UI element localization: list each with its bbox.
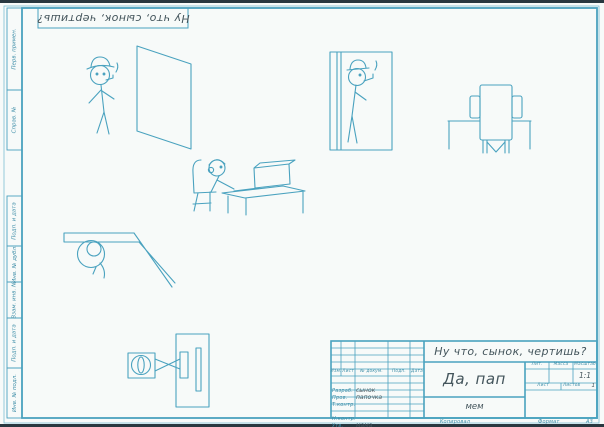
format-value: А3 xyxy=(586,420,593,425)
lit-label: Лит. xyxy=(532,363,543,367)
margin-label: Подп. и дата xyxy=(12,324,18,361)
margin-cell-sprav-no: Справ. № xyxy=(7,90,22,150)
scene-chair-and-desk-front-view xyxy=(448,85,531,153)
margin-label: Инв. № дубл. xyxy=(12,245,18,283)
drawing-title-cell: Да, пап xyxy=(424,362,525,397)
sig-value-prov: папочка xyxy=(356,384,388,390)
th-izm: Изм. xyxy=(331,369,341,376)
sig-value: мама xyxy=(356,422,372,427)
margin-cell-podp-data-2: Подп. и дата xyxy=(7,318,22,368)
scale-value-cell: 1:1 xyxy=(573,369,597,383)
sig-row-utv: Утв. xyxy=(332,412,355,418)
designation-text: Ну что, сынок, чертишь? xyxy=(434,346,587,357)
doc-note-text: мем xyxy=(465,403,483,412)
sig-row-nkontr: Н.контр. xyxy=(332,405,355,411)
doc-note-cell: мем xyxy=(424,397,525,418)
margin-cell-inv-dubl: Инв. № дубл. xyxy=(7,246,22,282)
drawing-sheet: Ну что, сынок, чертишь? Перв. примен. Сп… xyxy=(0,0,604,427)
copied-by-label: Копировал xyxy=(440,420,470,425)
scale-value: 1:1 xyxy=(579,372,591,380)
sig-value-razrab: сынок xyxy=(356,377,388,383)
margin-cell-vzam-inv: Взам. инв. № xyxy=(7,282,22,318)
th-podp: Подп. xyxy=(388,369,410,376)
th-data: Дата xyxy=(410,369,424,376)
sig-row-tkontr: Т.контр. xyxy=(332,391,355,397)
sheet-label: Лист xyxy=(537,384,549,388)
mass-label: Масса xyxy=(554,363,569,367)
th-list: Лист xyxy=(341,369,355,376)
corner-stamp-text: Ну что, сынок, чертишь? xyxy=(37,13,190,24)
th-data-label: Дата xyxy=(411,370,423,374)
margin-cell-podp-data-1: Подп. и дата xyxy=(7,196,22,246)
corner-stamp: Ну что, сынок, чертишь? xyxy=(38,8,188,28)
scale-header: Масштаб xyxy=(573,362,597,369)
lit-header: Лит. xyxy=(525,362,549,369)
scene-dad-peeking-around-wall xyxy=(87,46,191,149)
sig-value-utv: мама xyxy=(356,412,388,418)
sig-row-razrab: Разраб. xyxy=(332,377,355,383)
scale-label: Масштаб xyxy=(574,363,596,367)
scene-dad-peeking-through-door xyxy=(330,52,392,150)
format-label: Формат xyxy=(538,420,560,425)
margin-label: Справ. № xyxy=(12,107,18,134)
sig-value: папочка xyxy=(356,394,382,401)
designation-cell: Ну что, сынок, чертишь? xyxy=(424,341,597,362)
scene-dad-head-top-view-over-partition xyxy=(64,233,175,287)
th-list-label: Лист xyxy=(342,370,354,374)
sheets-cell: Листов 1 xyxy=(561,383,597,390)
sig-label: Утв. xyxy=(332,423,343,427)
scene-room-plan-view-with-sightlines xyxy=(128,334,209,407)
margin-cell-perv-primen: Перв. примен. xyxy=(7,8,22,90)
copied-by: Копировал xyxy=(425,418,485,426)
scene-son-drafting-at-computer xyxy=(193,160,305,215)
drawing-title-text: Да, пап xyxy=(443,372,506,387)
th-izm-label: Изм. xyxy=(331,370,342,374)
margin-cell-inv-podl: Инв. № подл. xyxy=(7,368,22,418)
th-docnum: № докум. xyxy=(355,369,388,376)
sheets-value: 1 xyxy=(592,384,596,390)
sheets-label: Листов xyxy=(563,384,580,388)
th-podp-label: Подп. xyxy=(392,370,406,374)
margin-label: Взам. инв. № xyxy=(12,281,18,318)
margin-label: Подп. и дата xyxy=(12,202,18,239)
margin-label: Перв. примен. xyxy=(12,28,18,69)
sig-row-prov: Пров. xyxy=(332,384,355,390)
th-docnum-label: № докум. xyxy=(360,370,383,374)
sheet-cell: Лист xyxy=(525,383,561,390)
format-block: Формат А3 xyxy=(538,418,597,426)
margin-label: Инв. № подл. xyxy=(12,374,18,412)
mass-header: Масса xyxy=(549,362,573,369)
